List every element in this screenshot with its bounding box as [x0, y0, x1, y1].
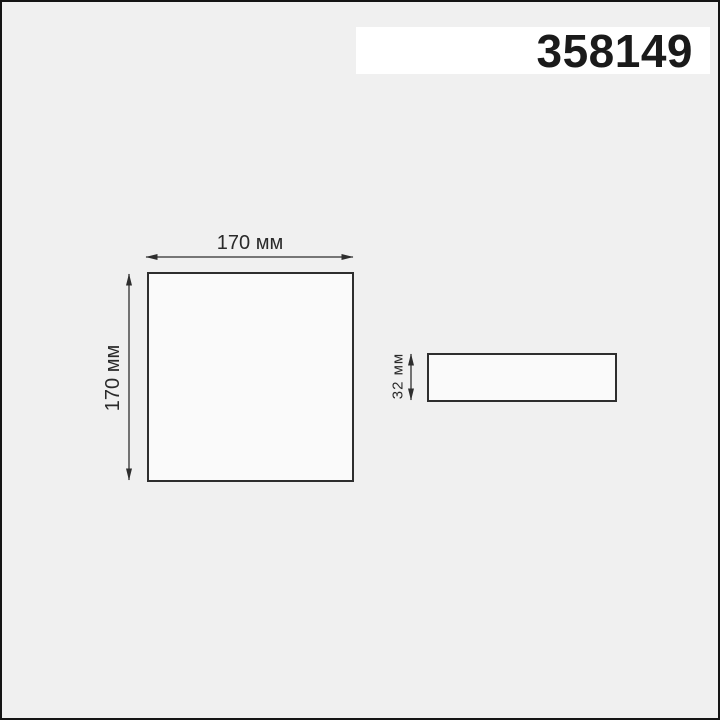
- front-height-label: 170 мм: [103, 345, 123, 411]
- side-height-label: 32 мм: [391, 353, 406, 399]
- side-view-outline: [428, 354, 616, 401]
- catalog-page: 358149 170 мм 170 мм 32 мм: [0, 0, 720, 720]
- front-width-label: 170 мм: [217, 233, 283, 253]
- front-view-outline: [148, 273, 353, 481]
